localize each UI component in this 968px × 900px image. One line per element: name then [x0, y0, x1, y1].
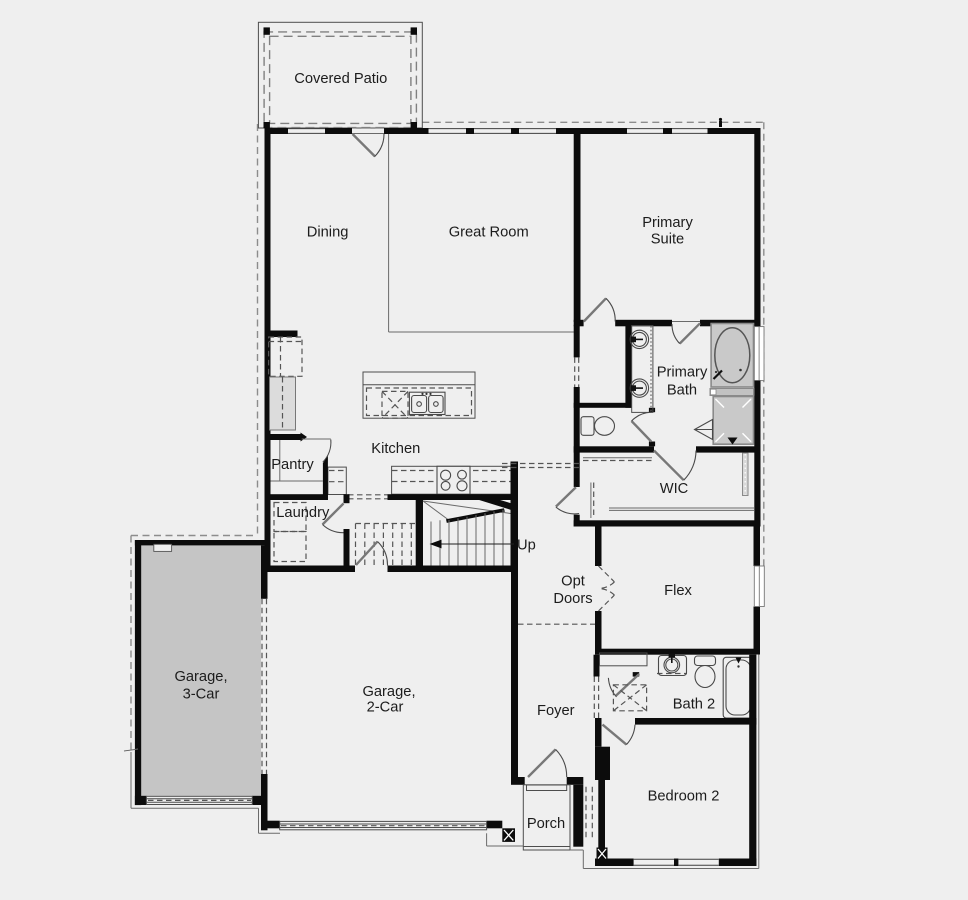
- svg-text:Primary: Primary: [642, 215, 693, 231]
- svg-text:Flex: Flex: [664, 583, 692, 599]
- svg-text:Kitchen: Kitchen: [371, 441, 420, 457]
- svg-text:Pantry: Pantry: [271, 457, 314, 473]
- svg-text:WIC: WIC: [660, 481, 689, 497]
- svg-text:Dining: Dining: [307, 225, 349, 241]
- svg-text:Primary: Primary: [657, 364, 708, 380]
- svg-text:2-Car: 2-Car: [367, 700, 404, 716]
- svg-text:Porch: Porch: [527, 816, 565, 832]
- svg-text:Foyer: Foyer: [537, 703, 575, 719]
- svg-text:Garage,: Garage,: [362, 684, 415, 700]
- svg-text:Up: Up: [517, 538, 536, 554]
- svg-text:Garage,: Garage,: [174, 669, 227, 685]
- svg-text:Laundry: Laundry: [276, 505, 330, 521]
- svg-text:Bath 2: Bath 2: [673, 697, 715, 713]
- svg-text:Covered Patio: Covered Patio: [294, 71, 387, 87]
- svg-text:3-Car: 3-Car: [183, 687, 220, 703]
- svg-text:Bath: Bath: [667, 382, 697, 398]
- svg-text:Bedroom 2: Bedroom 2: [648, 789, 720, 805]
- svg-text:Opt: Opt: [561, 574, 585, 590]
- svg-text:Suite: Suite: [651, 232, 684, 248]
- svg-text:Great Room: Great Room: [449, 225, 529, 241]
- svg-text:Doors: Doors: [553, 591, 592, 607]
